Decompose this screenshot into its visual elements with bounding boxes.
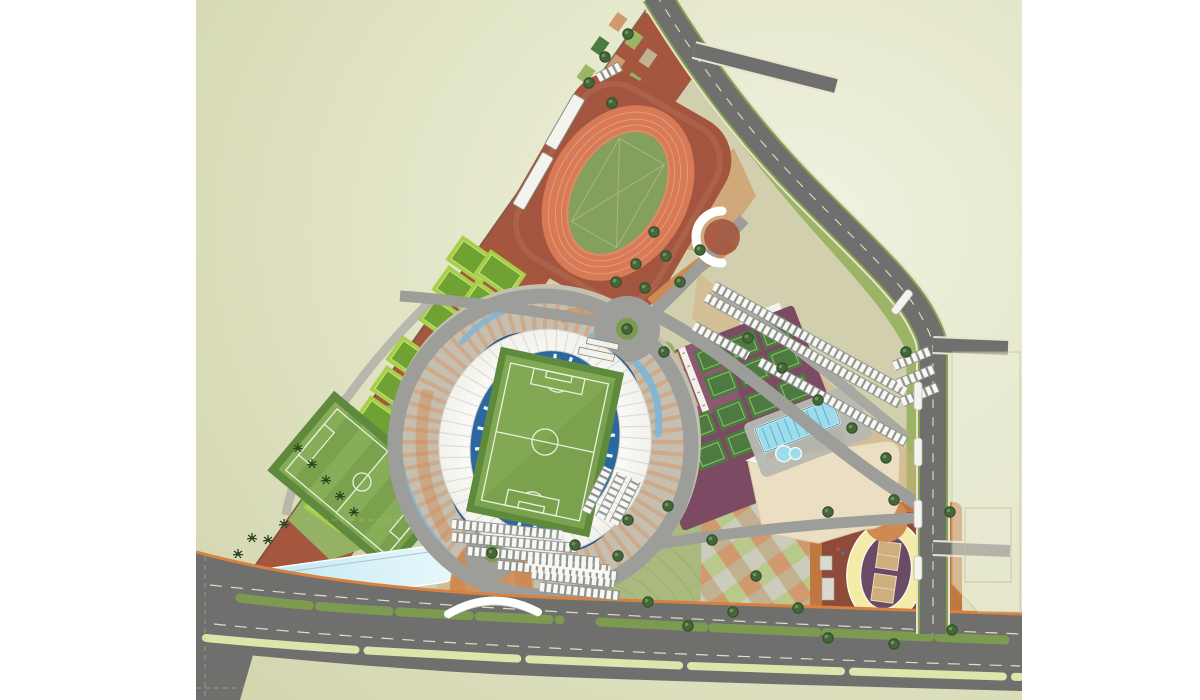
plan-area <box>196 0 1022 700</box>
future-plot-outline <box>952 352 1020 612</box>
masterplan-canvas <box>0 0 1200 700</box>
masterplan-rendering <box>0 0 1200 700</box>
